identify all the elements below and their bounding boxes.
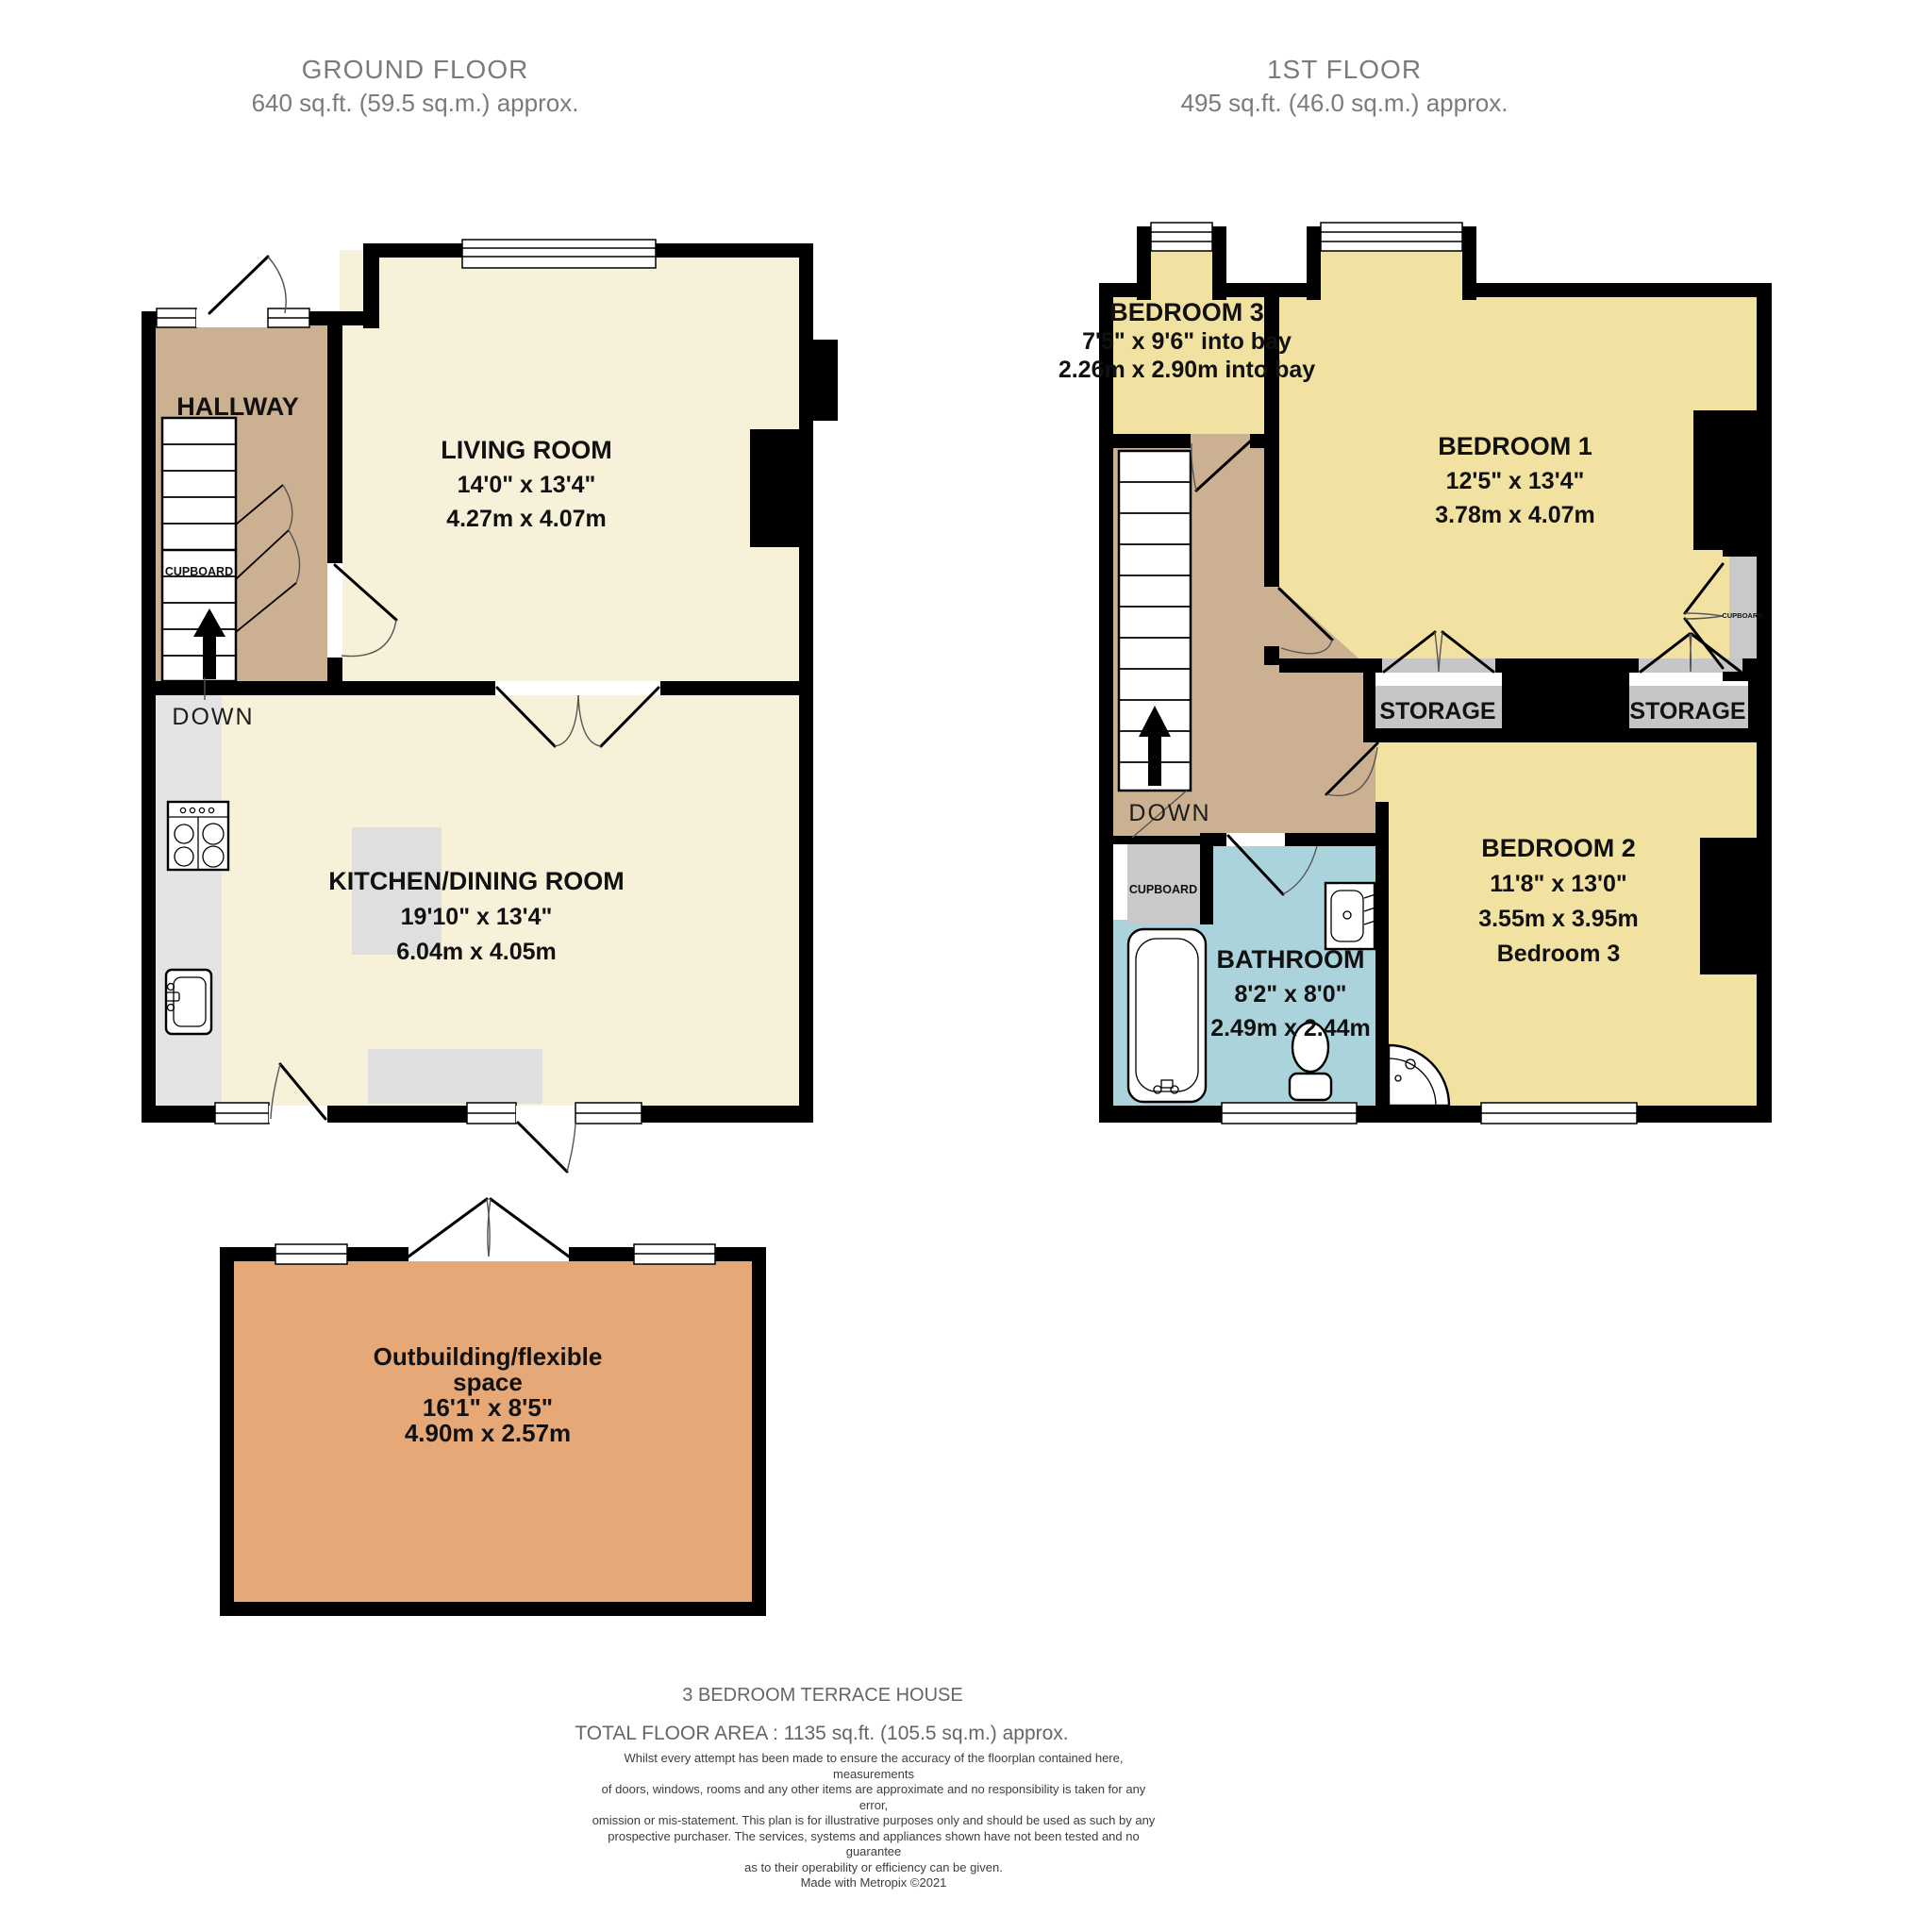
bedroom2-dims-metric: 3.55m x 3.95m xyxy=(1478,906,1639,932)
hallway-label: HALLWAY xyxy=(176,392,299,421)
front-window-left xyxy=(157,308,196,327)
chimney-breast xyxy=(1700,838,1757,974)
wall xyxy=(1264,646,1279,665)
kitchen-dims-metric: 6.04m x 4.05m xyxy=(396,939,557,965)
bedroom3-bay-window xyxy=(1151,223,1212,251)
stove-icon xyxy=(168,802,228,870)
bedroom3-bay-floor xyxy=(1151,247,1212,297)
living-room-dims-metric: 4.27m x 4.07m xyxy=(446,506,607,532)
outbuilding-dims-imperial: 16'1" x 8'5" xyxy=(423,1393,553,1422)
window xyxy=(1321,223,1462,251)
property-type: 3 BEDROOM TERRACE HOUSE xyxy=(540,1685,1106,1707)
bedroom1-bay-window xyxy=(1321,223,1462,251)
sink-body xyxy=(166,970,211,1034)
disclaimer-line: omission or mis-statement. This plan is … xyxy=(591,1813,1157,1829)
bedroom1-dims-imperial: 12'5" x 13'4" xyxy=(1446,468,1585,494)
living-room-bay-window xyxy=(462,240,656,268)
bathtub-icon xyxy=(1128,929,1206,1102)
bathtub-outer xyxy=(1128,929,1206,1102)
wall xyxy=(142,681,813,695)
bedroom1-door-gap xyxy=(1264,587,1279,646)
bedroom1-bay-floor xyxy=(1321,247,1462,297)
bedroom2-label: BEDROOM 2 xyxy=(1481,834,1636,862)
bathroom-dims-metric: 2.49m x 2.44m xyxy=(1210,1015,1371,1041)
wall xyxy=(1375,802,1389,1108)
floorplan-drawing: HALLWAY CUPBOARD DOWN LIVING ROOM 14'0" … xyxy=(0,0,1917,1932)
wall xyxy=(142,311,156,1123)
bedroom3-door-gap xyxy=(1191,434,1250,448)
living-room-floor xyxy=(340,250,807,689)
chimney-breast xyxy=(1693,410,1757,550)
wall xyxy=(1250,434,1264,448)
cupboard-label: CUPBOARD xyxy=(165,565,233,578)
down-label: DOWN xyxy=(172,704,254,730)
front-window-right xyxy=(268,308,309,327)
garden-door-arc xyxy=(567,1123,575,1172)
bedroom2-note: Bedroom 3 xyxy=(1497,941,1621,967)
cupboard-cap xyxy=(1723,547,1757,557)
disclaimer-line: of doors, windows, rooms and any other i… xyxy=(591,1782,1157,1813)
kitchen-dims-imperial: 19'10" x 13'4" xyxy=(401,904,553,930)
kitchen-label: KITCHEN/DINING ROOM xyxy=(328,867,625,895)
up-arrow-shaft xyxy=(1148,734,1161,786)
outbuilding-window-left xyxy=(275,1244,347,1264)
living-door-opening xyxy=(327,563,342,658)
basin-body xyxy=(1325,883,1375,949)
outbuilding-label-line1: Outbuilding/flexible xyxy=(374,1342,603,1371)
living-room-label: LIVING ROOM xyxy=(441,436,612,464)
kitchen-counter xyxy=(156,695,222,1106)
wall xyxy=(1113,836,1200,844)
chimney-exterior xyxy=(813,340,838,421)
bedroom3-dims-imperial: 7'5" x 9'6" into bay xyxy=(1082,328,1292,355)
front-door-arc xyxy=(268,257,286,313)
wall xyxy=(1200,846,1213,924)
bedroom3-dims-metric: 2.26m x 2.90m into bay xyxy=(1059,357,1315,383)
wall xyxy=(1476,283,1757,297)
kitchen-window-mid xyxy=(467,1103,516,1124)
wall xyxy=(752,1247,766,1616)
sink-icon xyxy=(166,970,211,1034)
bedroom1-dims-metric: 3.78m x 4.07m xyxy=(1435,502,1595,528)
basin-icon xyxy=(1325,883,1375,949)
wall xyxy=(1363,728,1757,742)
up-arrow-shaft xyxy=(203,634,216,679)
bathroom-label: BATHROOM xyxy=(1217,945,1365,974)
stairs-first xyxy=(1119,451,1191,838)
bedroom3-label: BEDROOM 3 xyxy=(1109,298,1264,326)
kitchen-window-left xyxy=(215,1103,269,1124)
bathroom-floor xyxy=(1213,840,1375,1108)
disclaimer-made-with: Made with Metropix ©2021 xyxy=(591,1875,1157,1891)
outbuilding-window-right xyxy=(634,1244,715,1264)
french-door-opening xyxy=(495,681,660,695)
wall xyxy=(220,1247,234,1616)
disclaimer-line: as to their operability or efficiency ca… xyxy=(591,1860,1157,1876)
outbuilding-plan: Outbuilding/flexible space 16'1" x 8'5" … xyxy=(220,1199,766,1616)
kitchen-window-right xyxy=(575,1103,642,1124)
outbuilding-label-line2: space xyxy=(453,1368,523,1396)
bedroom1-label: BEDROOM 1 xyxy=(1438,432,1592,460)
down-label: DOWN xyxy=(1128,800,1210,826)
bathroom-dims-imperial: 8'2" x 8'0" xyxy=(1234,981,1346,1008)
front-door-opening xyxy=(196,309,268,327)
ground-floor-plan: HALLWAY CUPBOARD DOWN LIVING ROOM 14'0" … xyxy=(142,240,838,1172)
outbuilding-dims-metric: 4.90m x 2.57m xyxy=(405,1419,571,1447)
living-room-dims-imperial: 14'0" x 13'4" xyxy=(458,472,596,498)
kitchen-door-opening xyxy=(269,1106,327,1123)
storage-right-label: STORAGE xyxy=(1629,698,1745,724)
wall xyxy=(1099,283,1113,1123)
bathroom-window xyxy=(1222,1103,1357,1124)
bedroom2-window xyxy=(1481,1103,1637,1124)
bedroom2-dims-imperial: 11'8" x 13'0" xyxy=(1490,871,1626,897)
total-floor-area: TOTAL FLOOR AREA : 1135 sq.ft. (105.5 sq… xyxy=(515,1723,1128,1745)
toilet-tank xyxy=(1290,1074,1331,1100)
wall xyxy=(1113,434,1191,448)
disclaimer-line: Whilst every attempt has been made to en… xyxy=(591,1751,1157,1782)
wall xyxy=(220,1602,766,1616)
storage-left-label: STORAGE xyxy=(1379,698,1495,724)
bedroom1-cupboard-label: CUPBOARD xyxy=(1722,611,1763,620)
garden-door-leaf xyxy=(518,1123,567,1172)
chimney-breast xyxy=(750,429,799,547)
disclaimer: Whilst every attempt has been made to en… xyxy=(591,1751,1157,1891)
window xyxy=(462,240,656,268)
wall xyxy=(1757,283,1772,1123)
cupboard-cap xyxy=(1723,672,1757,681)
garden-door-opening xyxy=(516,1106,575,1123)
wall xyxy=(1099,283,1137,297)
first-floor-plan: BEDROOM 3 7'5" x 9'6" into bay 2.26m x 2… xyxy=(1059,223,1772,1124)
window xyxy=(1151,223,1212,251)
kitchen-unit xyxy=(368,1049,542,1104)
landing-cupboard-label: CUPBOARD xyxy=(1129,883,1197,896)
wall xyxy=(1099,1106,1772,1123)
front-door-leaf xyxy=(209,257,268,313)
floorplan-page: GROUND FLOOR 640 sq.ft. (59.5 sq.m.) app… xyxy=(0,0,1917,1932)
disclaimer-line: prospective purchaser. The services, sys… xyxy=(591,1829,1157,1860)
